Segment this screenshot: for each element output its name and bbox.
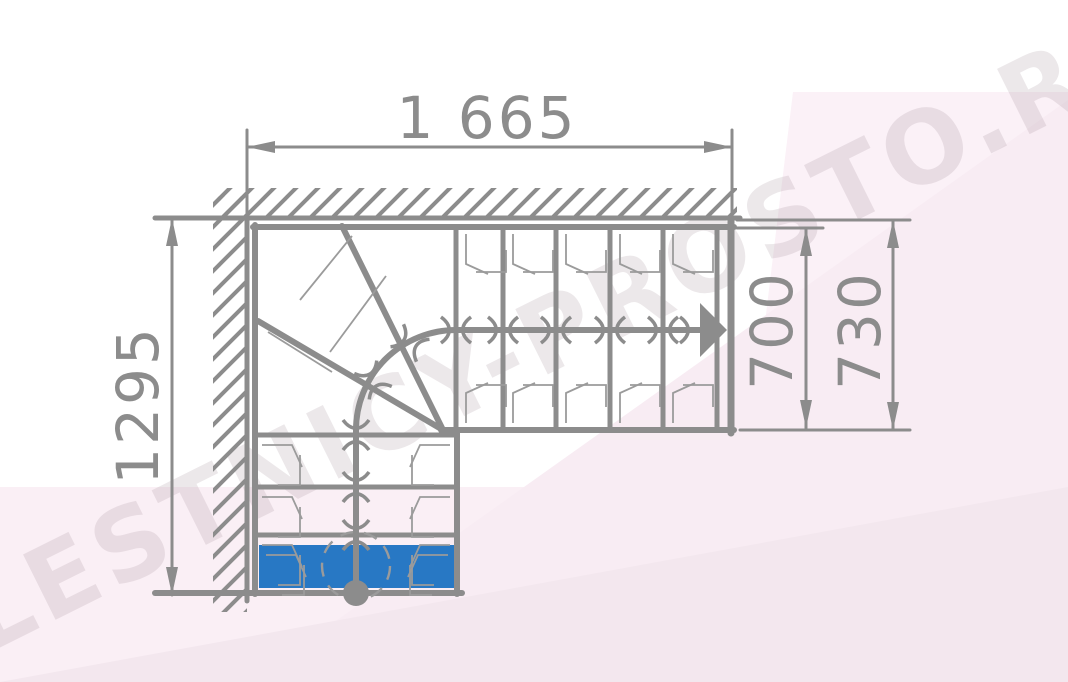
staircase-plan-drawing: LESTNICY-PROSTO.RU: [0, 0, 1068, 682]
top-wall-hatch: [213, 188, 737, 218]
winder-thin-line-1: [300, 236, 352, 300]
winder-thin-line-3: [330, 276, 386, 352]
walk-line-start-dot: [343, 580, 369, 606]
dim-label-flight-outer: 730: [826, 270, 894, 390]
plan-canvas: LESTNICY-PROSTO.RU: [0, 0, 1068, 682]
winder-thin-line-2: [268, 332, 332, 372]
dim-label-top-width: 1 665: [396, 84, 577, 152]
dim-label-left-height: 1295: [104, 325, 172, 485]
dim-label-flight-inner: 700: [738, 270, 806, 390]
left-wall-hatch: [213, 196, 247, 612]
